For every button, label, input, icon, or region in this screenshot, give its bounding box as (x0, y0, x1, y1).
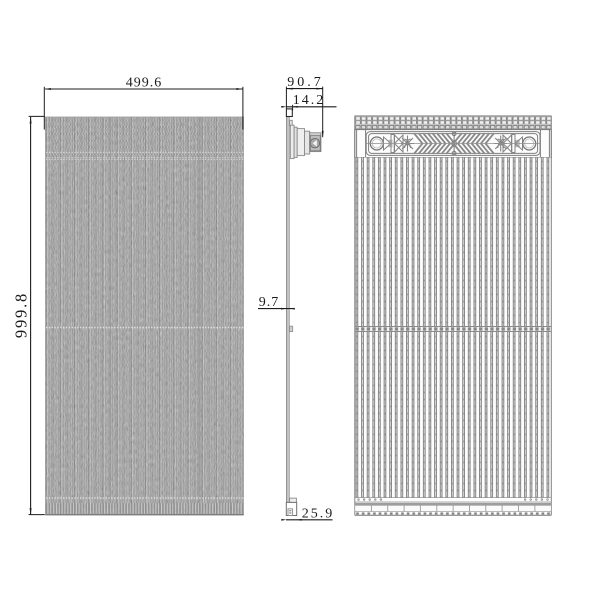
svg-text:999.8: 999.8 (12, 292, 31, 338)
svg-text:14.2: 14.2 (293, 93, 326, 108)
svg-text:9.7: 9.7 (259, 295, 280, 310)
svg-text:25.9: 25.9 (302, 506, 335, 521)
svg-text:90.7: 90.7 (287, 75, 324, 90)
svg-text:499.6: 499.6 (126, 76, 163, 91)
